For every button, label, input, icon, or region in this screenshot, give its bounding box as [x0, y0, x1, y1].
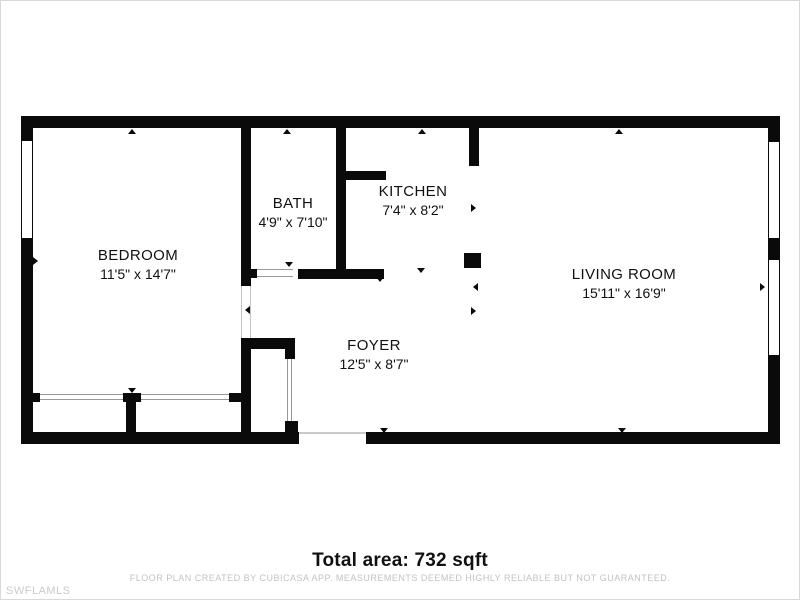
bedroom-closet-door-left	[40, 394, 123, 400]
room-label-living-room: LIVING ROOM 15'11" x 16'9"	[572, 266, 676, 301]
marker-icon	[33, 257, 38, 265]
bedroom-closet-door-right	[141, 394, 229, 400]
bedroom-closet-divider	[126, 400, 136, 433]
bedroom-window	[21, 140, 33, 239]
wall-kitchen-living-stub	[469, 128, 479, 166]
marker-icon	[760, 283, 765, 291]
wall-bedroom-divider-upper	[241, 128, 251, 286]
marker-icon	[285, 262, 293, 267]
room-name: BEDROOM	[98, 247, 178, 264]
room-name: LIVING ROOM	[572, 266, 676, 283]
bath-doorway	[257, 269, 293, 277]
room-dimensions: 12'5" x 8'7"	[340, 356, 409, 372]
marker-icon	[128, 129, 136, 134]
foyer-closet-door	[287, 359, 292, 422]
marker-icon	[618, 428, 626, 433]
wall-bath-kitchen-divider	[336, 128, 346, 270]
floor-plan-image: BEDROOM 11'5" x 14'7" BATH 4'9" x 7'10" …	[0, 0, 800, 600]
wall-bottom-left-of-entry	[21, 432, 299, 444]
room-label-bath: BATH 4'9" x 7'10"	[259, 195, 328, 230]
room-dimensions: 15'11" x 16'9"	[572, 285, 676, 301]
wall-right-mid	[768, 238, 780, 260]
marker-icon	[245, 306, 250, 314]
marker-icon	[128, 388, 136, 393]
room-label-foyer: FOYER 12'5" x 8'7"	[340, 337, 409, 372]
wall-top	[21, 116, 780, 128]
kitchen-counter-stub	[346, 171, 386, 180]
marker-icon	[615, 129, 623, 134]
living-room-window-lower	[768, 259, 780, 356]
mls-watermark: SWFLAMLS	[6, 585, 71, 597]
marker-icon	[418, 129, 426, 134]
foyer-closet-return	[285, 349, 295, 359]
marker-icon	[376, 277, 384, 282]
bedroom-closet-stub-right	[229, 393, 241, 402]
room-label-kitchen: KITCHEN 7'4" x 8'2"	[379, 183, 448, 218]
room-dimensions: 4'9" x 7'10"	[259, 214, 328, 230]
wall-left-upper	[21, 116, 33, 142]
wall-left-lower	[21, 238, 33, 444]
room-name: FOYER	[340, 337, 409, 354]
marker-icon	[380, 428, 388, 433]
room-name: BATH	[259, 195, 328, 212]
bedroom-closet-stub-left	[33, 393, 40, 402]
room-dimensions: 7'4" x 8'2"	[379, 202, 448, 218]
room-dimensions: 11'5" x 14'7"	[98, 266, 178, 282]
disclaimer-text: FLOOR PLAN CREATED BY CUBICASA APP. MEAS…	[1, 573, 799, 583]
marker-icon	[471, 307, 476, 315]
living-room-window-upper	[768, 141, 780, 239]
marker-icon	[473, 283, 478, 291]
marker-icon	[283, 129, 291, 134]
room-label-bedroom: BEDROOM 11'5" x 14'7"	[98, 247, 178, 282]
wall-right-lower	[768, 355, 780, 444]
room-name: KITCHEN	[379, 183, 448, 200]
bath-door-stub	[249, 269, 257, 278]
marker-icon	[471, 204, 476, 212]
foyer-closet-bottom-stub	[285, 421, 298, 433]
front-door-opening	[299, 432, 366, 434]
wall-bottom-right-of-entry	[366, 432, 780, 444]
marker-icon	[417, 268, 425, 273]
foyer-closet-top-wall	[251, 338, 295, 349]
wall-kitchen-foyer-divider	[298, 269, 384, 279]
total-area-text: Total area: 732 sqft	[1, 550, 799, 572]
wall-bedroom-divider-lower	[241, 338, 251, 444]
fixture-square	[464, 253, 481, 268]
wall-right-upper	[768, 116, 780, 142]
